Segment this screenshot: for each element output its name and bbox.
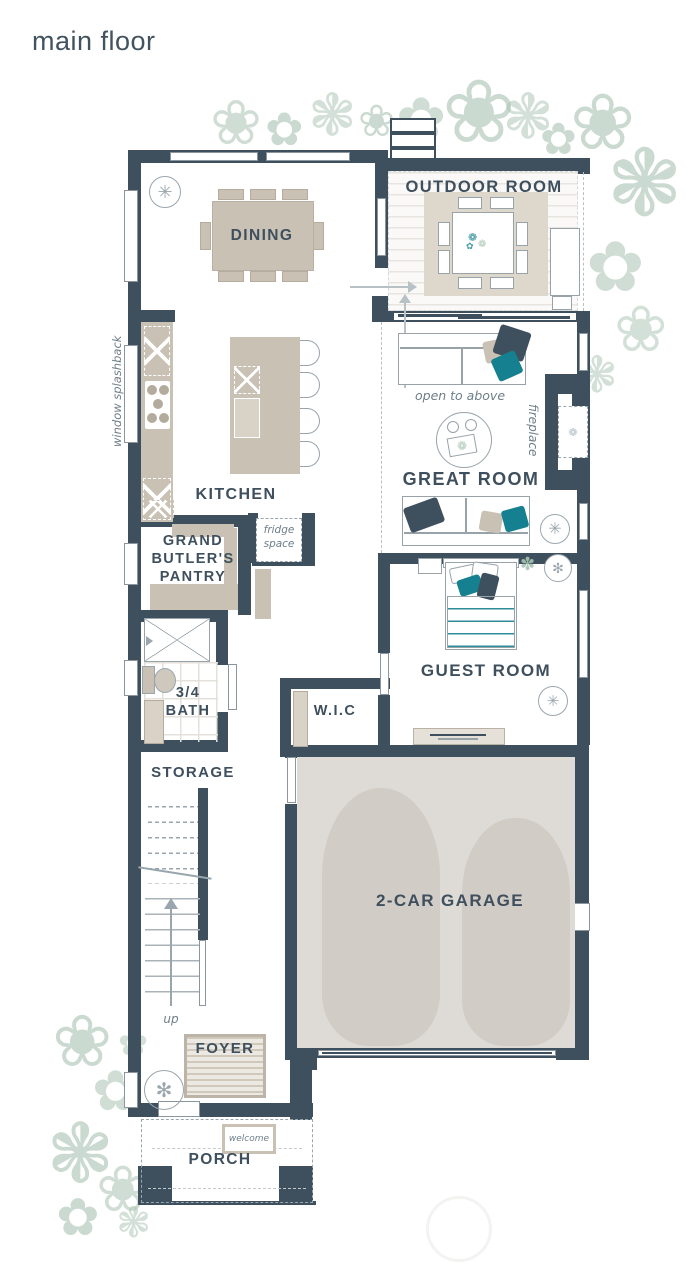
- garage-vehicle-door-line: [322, 1052, 552, 1054]
- window: [579, 503, 588, 540]
- fridge-unit: [254, 568, 272, 620]
- room-label-kitchen: KITCHEN: [186, 485, 286, 505]
- plant-icon: ❀: [614, 298, 668, 362]
- plant-icon: ✿: [56, 1192, 100, 1244]
- window: [124, 1072, 138, 1108]
- plant-pot-icon: ✳: [538, 686, 568, 716]
- room-label-pantry: GRAND BUTLER'S PANTRY: [143, 532, 243, 586]
- dining-chair: [250, 271, 276, 282]
- wall: [378, 158, 590, 171]
- window: [579, 590, 588, 678]
- annotation-fridge-space: fridge space: [256, 524, 302, 551]
- island-stool: [300, 372, 320, 398]
- table-decor-icon: ✿: [466, 243, 474, 252]
- wall: [378, 553, 390, 653]
- room-label-outdoor: OUTDOOR ROOM: [396, 177, 572, 198]
- firebox: ❁: [558, 406, 588, 458]
- outdoor-chair: [438, 222, 450, 246]
- watermark-circle: [426, 1196, 492, 1262]
- stair-rail: [199, 940, 206, 1006]
- pillow: [478, 510, 503, 534]
- dining-chair: [282, 189, 308, 200]
- flow-arrow: [350, 286, 410, 288]
- burner-icon: [159, 385, 169, 395]
- burner-icon: [153, 399, 163, 409]
- island-stool: [300, 408, 320, 434]
- outdoor-chair: [458, 197, 482, 209]
- wall: [302, 513, 315, 563]
- burner-icon: [147, 385, 157, 395]
- wall: [128, 150, 141, 1113]
- car-silhouette: [322, 788, 440, 1046]
- outdoor-steps: [390, 118, 436, 133]
- annotation-open-to-above: open to above: [398, 388, 522, 403]
- dining-chair: [313, 222, 324, 250]
- outdoor-chair: [490, 277, 514, 289]
- window: [124, 345, 138, 443]
- dresser-handle: [430, 734, 486, 736]
- room-label-great: GREAT ROOM: [398, 468, 544, 491]
- annotation-welcome: welcome: [229, 1134, 269, 1144]
- plant-pot-icon: ✳: [540, 514, 570, 544]
- room-label-porch: PORCH: [172, 1150, 268, 1169]
- plant-icon: ✿: [265, 106, 304, 152]
- dining-chair: [250, 189, 276, 200]
- stairs-upper-dashed: [145, 792, 198, 884]
- bbq-counter: [550, 228, 580, 296]
- outdoor-chair: [516, 222, 528, 246]
- open-ceiling-line: [381, 322, 382, 553]
- shower: [144, 618, 210, 662]
- window: [170, 152, 258, 161]
- flame-decor-icon: ❁: [568, 427, 577, 438]
- deck-edge-line: [583, 172, 584, 311]
- plant-icon: ✽: [520, 556, 535, 574]
- room-label-guest: GUEST ROOM: [404, 660, 568, 681]
- wall: [280, 678, 390, 689]
- outdoor-chair: [490, 197, 514, 209]
- annotation-window-splashback: window splashback: [110, 336, 124, 447]
- plant-icon: ❃: [606, 138, 683, 230]
- outdoor-chair: [438, 250, 450, 274]
- up-arrow: [170, 906, 172, 1006]
- up-arrow-head: [164, 898, 178, 909]
- door-leaf: [228, 664, 237, 710]
- dining-chair: [282, 271, 308, 282]
- burner-icon: [159, 413, 169, 423]
- porch-line: [148, 1188, 306, 1189]
- outdoor-steps: [390, 133, 436, 148]
- wall: [285, 745, 589, 757]
- window: [124, 543, 138, 585]
- cup: [465, 419, 477, 431]
- cup: [447, 421, 459, 433]
- wall: [285, 804, 297, 1060]
- pantry-counter: [150, 584, 238, 610]
- island-stool: [300, 441, 320, 467]
- foyer-plant-icon: ✻: [144, 1070, 184, 1110]
- ceiling-fan-icon: ✻: [544, 554, 572, 582]
- flow-arrow-head: [399, 294, 411, 303]
- dining-chair: [218, 189, 244, 200]
- bed-blanket: [447, 596, 515, 648]
- plant-icon: ❃: [308, 86, 357, 144]
- sofa-cushion-line: [461, 348, 463, 384]
- flow-arrow-head: [408, 281, 417, 293]
- sofa-cushion-line: [465, 498, 467, 534]
- annotation-up: up: [156, 1012, 186, 1026]
- room-label-bath: 3/4 BATH: [156, 684, 220, 720]
- bbq-shelf: [552, 296, 572, 310]
- fireplace-structure: [572, 394, 590, 406]
- wall: [216, 610, 228, 665]
- wall: [200, 1103, 313, 1117]
- annotation-fireplace: fireplace: [526, 404, 540, 456]
- dresser-handle: [438, 738, 478, 740]
- window: [377, 198, 386, 256]
- fireplace-structure: [545, 374, 558, 490]
- wall: [128, 310, 175, 322]
- plant-icon: ❃: [116, 1202, 151, 1244]
- fireplace-structure: [572, 458, 590, 470]
- window: [266, 152, 350, 161]
- outdoor-chair: [516, 250, 528, 274]
- room-label-wic: W.I.C: [288, 702, 382, 720]
- sliding-door-panel: [458, 316, 570, 319]
- door-leaf: [380, 653, 389, 695]
- ceiling-medallion-icon: ✳: [149, 176, 181, 208]
- window: [124, 190, 138, 282]
- shower-head-icon: [146, 636, 153, 646]
- dresser: [413, 728, 505, 745]
- table-decor-icon: ❁: [478, 240, 486, 250]
- room-label-storage: STORAGE: [144, 764, 242, 783]
- island-stool: [300, 340, 320, 366]
- window: [579, 333, 588, 371]
- room-label-garage: 2-CAR GARAGE: [328, 890, 572, 911]
- pantry-tile: [142, 500, 174, 518]
- plant-icon: ✿: [586, 232, 645, 302]
- outdoor-chair: [458, 277, 482, 289]
- car-silhouette: [462, 818, 570, 1046]
- floor-plan: main floor ❀ ✿ ❃ ❀ ✿ ❀ ❃ ✿ ❀ ❃ ✿ ❀ ❃ ❀ ✿…: [0, 0, 700, 1270]
- flower-icon: ❁: [456, 439, 468, 453]
- door-leaf: [287, 757, 296, 803]
- page-title: main floor: [32, 26, 156, 57]
- island-sink: [234, 366, 260, 394]
- counter-corner: [144, 326, 170, 376]
- dishwasher: [234, 398, 260, 438]
- burner-icon: [147, 413, 157, 423]
- dining-chair: [218, 271, 244, 282]
- room-label-dining: DINING: [210, 226, 314, 245]
- nightstand: [418, 558, 442, 574]
- plant-icon: ❀: [210, 92, 262, 154]
- room-label-foyer: FOYER: [188, 1040, 262, 1059]
- window: [124, 660, 138, 696]
